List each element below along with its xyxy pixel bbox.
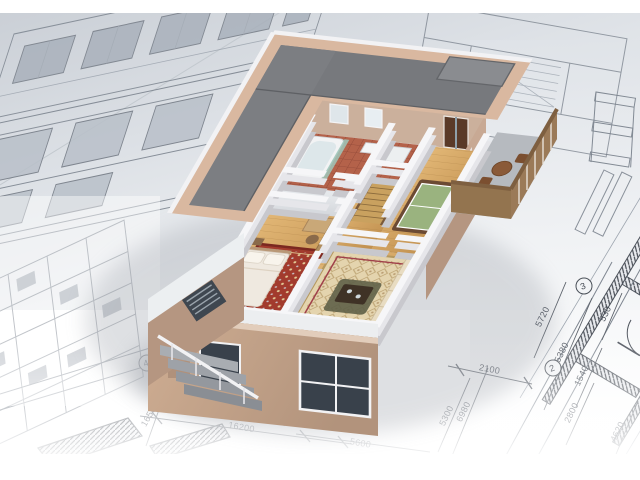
toilet-window — [365, 108, 382, 128]
top-margin — [0, 0, 640, 13]
render-canvas: 16200 12400 5600 2300 1650 2100 5300 698… — [0, 0, 640, 480]
bottom-margin — [0, 454, 640, 480]
bathroom-mirror — [330, 104, 348, 124]
architectural-render: 16200 12400 5600 2300 1650 2100 5300 698… — [0, 0, 640, 480]
